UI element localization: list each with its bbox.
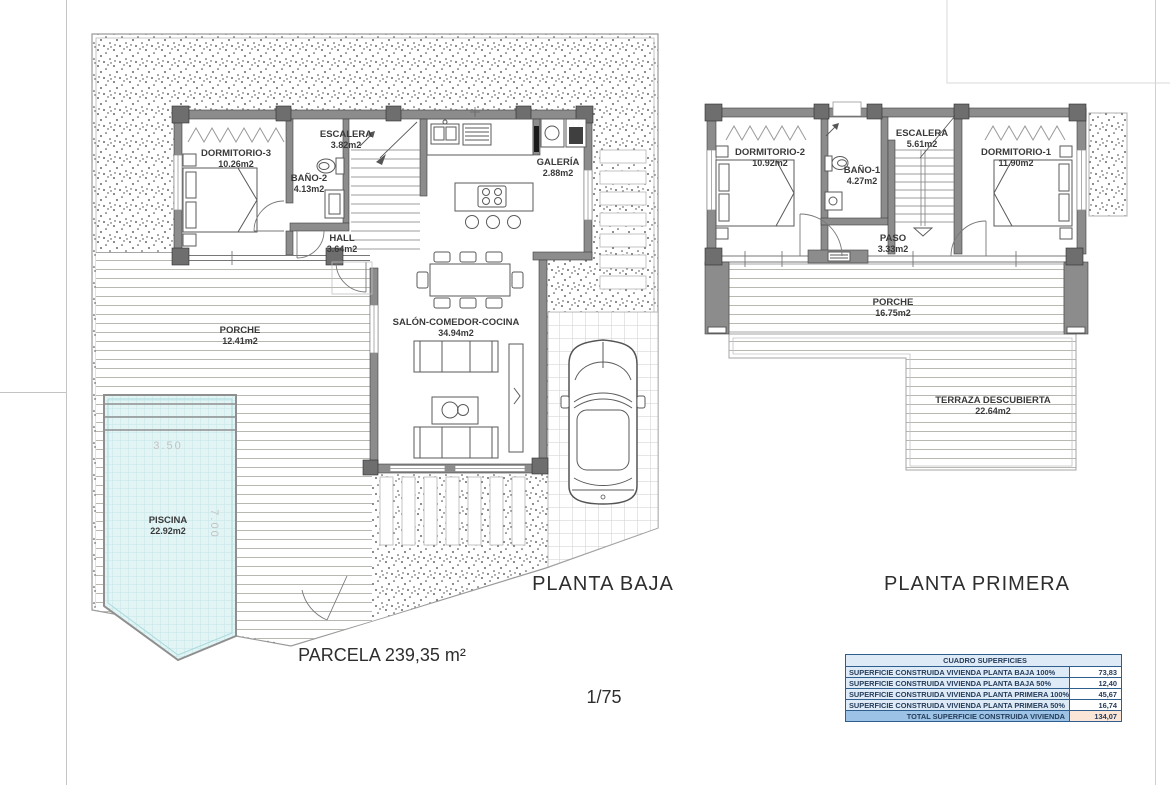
areas-table-header: CUADRO SUPERFICIES: [846, 655, 1121, 666]
total-label: TOTAL SUPERFICIE CONSTRUIDA VIVIENDA: [846, 711, 1069, 721]
room-area: 34.94m2: [438, 328, 474, 338]
room-area: 3.82m2: [331, 140, 362, 150]
pool-width-dim: 3.50: [153, 440, 182, 452]
room-area: 4.27m2: [847, 176, 878, 186]
room-area: 22.64m2: [975, 406, 1011, 416]
row-label: SUPERFICIE CONSTRUIDA VIVIENDA PLANTA PR…: [846, 700, 1069, 710]
room-label: DORMITORIO-1: [981, 147, 1052, 158]
room-label: PISCINA: [149, 515, 188, 526]
room-label: TERRAZA DESCUBIERTA: [935, 395, 1051, 406]
row-value: 73,83: [1069, 667, 1121, 677]
room-label: SALÓN-COMEDOR-COCINA: [393, 316, 520, 328]
room-label: DORMITORIO-3: [201, 148, 271, 159]
room-area: 22.92m2: [150, 526, 186, 536]
room-label: GALERÍA: [537, 157, 580, 168]
room-area: 10.26m2: [218, 159, 254, 169]
sofa-bottom: [414, 427, 498, 458]
galeria-appliances: [534, 119, 586, 152]
areas-table-title: CUADRO SUPERFICIES: [846, 655, 1121, 666]
tv-unit: [509, 344, 523, 452]
room-area: 2.88m2: [543, 168, 574, 178]
row-label: SUPERFICIE CONSTRUIDA VIVIENDA PLANTA BA…: [846, 667, 1069, 677]
room-label: ESCALERA: [896, 128, 948, 139]
room-label: BAÑO-1: [844, 165, 881, 176]
room-label: DORMITORIO-2: [735, 147, 805, 158]
first-floor-title: PLANTA PRIMERA: [884, 573, 1070, 595]
room-label: BAÑO-2: [291, 173, 327, 184]
row-value: 45,67: [1069, 689, 1121, 699]
path-slats-bottom: [380, 477, 525, 545]
areas-table: CUADRO SUPERFICIES SUPERFICIE CONSTRUIDA…: [845, 654, 1122, 722]
total-value: 134,07: [1069, 711, 1121, 721]
room-label: HALL: [329, 233, 355, 244]
car: [561, 340, 645, 504]
ground-floor-title: PLANTA BAJA: [532, 573, 674, 595]
scale-label: 1/75: [586, 687, 621, 707]
row-label: SUPERFICIE CONSTRUIDA VIVIENDA PLANTA BA…: [846, 678, 1069, 688]
table-total-row: TOTAL SUPERFICIE CONSTRUIDA VIVIENDA 134…: [846, 710, 1121, 721]
sofa-top: [414, 341, 498, 372]
side-terrace: [1089, 113, 1127, 216]
room-label: ESCALERA: [320, 129, 372, 140]
parcel-label: PARCELA 239,35 m²: [298, 645, 466, 665]
plan-sheet: 3.50 7.00: [0, 0, 1170, 785]
room-area: 5.61m2: [907, 139, 938, 149]
path-slats-right: [600, 150, 646, 289]
room-area: 4.13m2: [294, 184, 325, 194]
room-area: 3.33m2: [878, 244, 909, 254]
table-row: SUPERFICIE CONSTRUIDA VIVIENDA PLANTA PR…: [846, 688, 1121, 699]
room-area: 11.90m2: [998, 158, 1033, 168]
table-row: SUPERFICIE CONSTRUIDA VIVIENDA PLANTA PR…: [846, 699, 1121, 710]
first-floor-plan: DORMITORIO-2 10.92m2 BAÑO-1 4.27m2 ESCAL…: [705, 102, 1127, 470]
room-area: 16.75m2: [875, 308, 911, 318]
room-label: PORCHE: [220, 325, 261, 336]
room-label: PORCHE: [873, 297, 914, 308]
ground-floor-plan: 3.50 7.00: [92, 34, 658, 660]
pool-length-dim: 7.00: [208, 509, 220, 538]
room-area: 10.92m2: [752, 158, 788, 168]
table-row: SUPERFICIE CONSTRUIDA VIVIENDA PLANTA BA…: [846, 666, 1121, 677]
table-row: SUPERFICIE CONSTRUIDA VIVIENDA PLANTA BA…: [846, 677, 1121, 688]
coffee-table: [432, 397, 478, 424]
room-label: PASO: [880, 233, 906, 244]
row-value: 12,40: [1069, 678, 1121, 688]
room-area: 12.41m2: [222, 336, 258, 346]
room-area: 3.64m2: [327, 244, 358, 254]
row-label: SUPERFICIE CONSTRUIDA VIVIENDA PLANTA PR…: [846, 689, 1069, 699]
row-value: 16,74: [1069, 700, 1121, 710]
